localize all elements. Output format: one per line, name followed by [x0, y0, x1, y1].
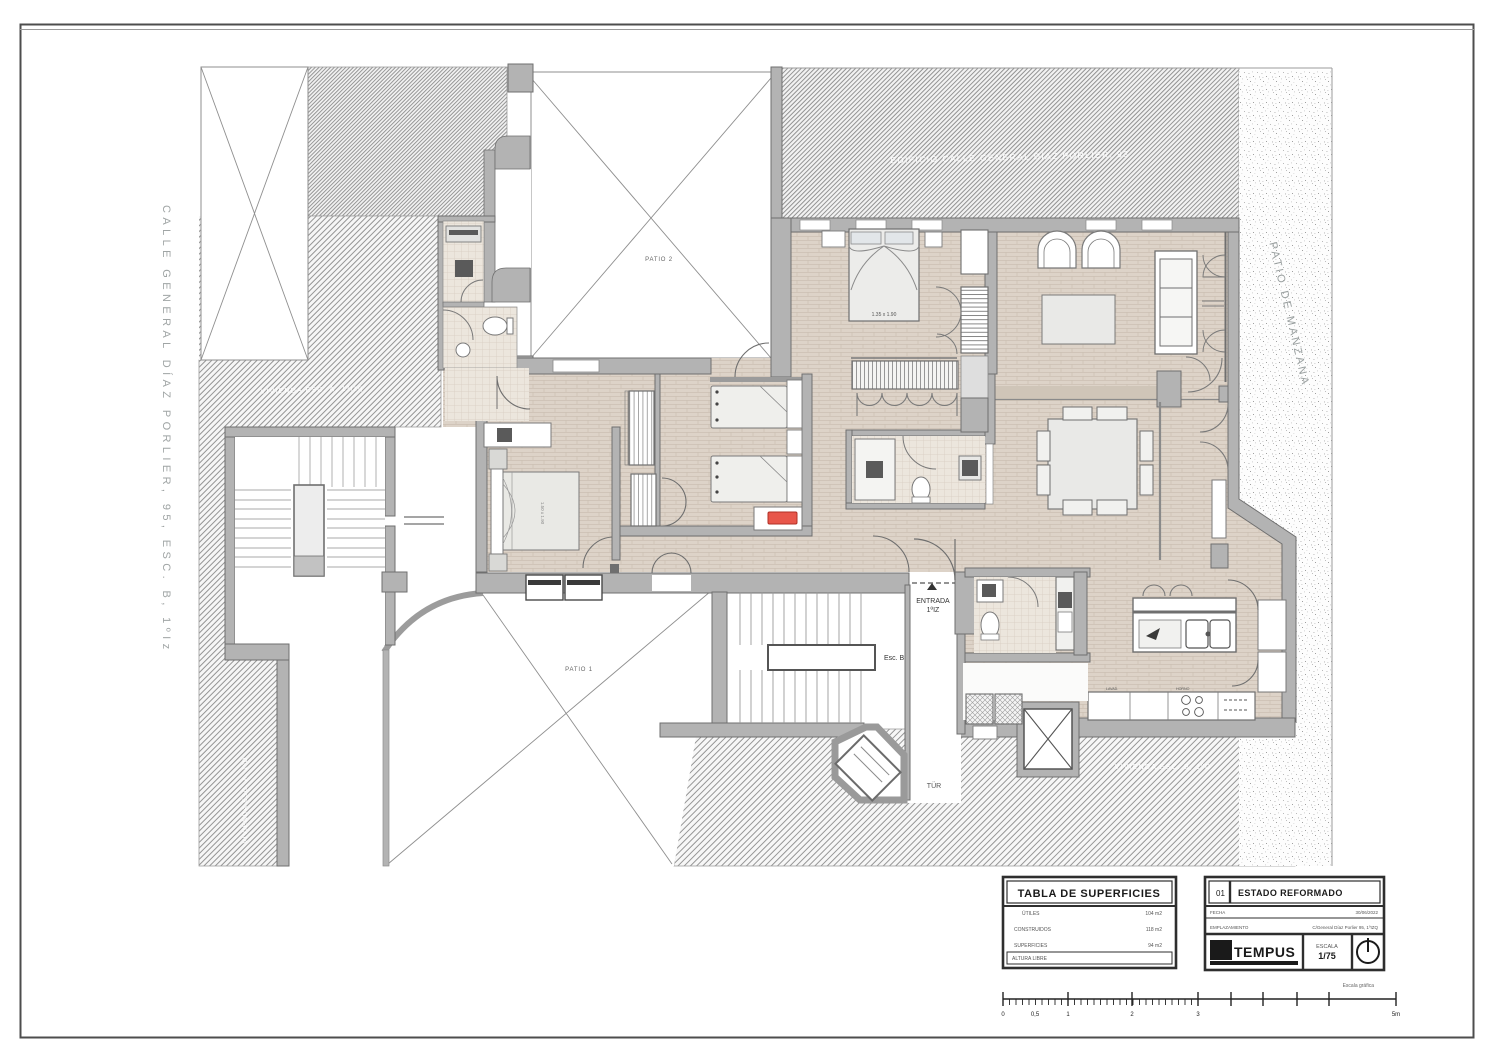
svg-text:1/75: 1/75: [1318, 951, 1336, 961]
svg-text:FECHA: FECHA: [1210, 910, 1225, 915]
svg-text:30/06/2022: 30/06/2022: [1355, 910, 1378, 915]
svg-text:VIVIENDA ESC. A, 1ºD: VIVIENDA ESC. A, 1ºD: [242, 756, 249, 843]
svg-text:Escala gráfica: Escala gráfica: [1343, 983, 1375, 989]
svg-text:ALTURA LIBRE: ALTURA LIBRE: [1012, 956, 1048, 962]
svg-text:104 m2: 104 m2: [1145, 911, 1162, 917]
svg-text:LAVAD.: LAVAD.: [1106, 687, 1118, 691]
svg-text:VIVIENDA ESC. B, 1ºD: VIVIENDA ESC. B, 1ºD: [1115, 764, 1212, 771]
svg-text:1.50 x 1.90: 1.50 x 1.90: [540, 502, 545, 525]
svg-text:Esc. B: Esc. B: [884, 655, 905, 662]
svg-text:TÜR: TÜR: [927, 782, 941, 790]
svg-text:TEMPUS: TEMPUS: [1234, 944, 1295, 960]
svg-text:PATIO 2: PATIO 2: [645, 257, 673, 263]
svg-text:118 m2: 118 m2: [1146, 927, 1163, 933]
svg-text:1ºIZ: 1ºIZ: [927, 607, 940, 614]
svg-text:ESTADO REFORMADO: ESTADO REFORMADO: [1238, 888, 1343, 898]
svg-text:ENTRADA: ENTRADA: [916, 598, 950, 605]
svg-text:PATIO 1: PATIO 1: [565, 667, 593, 673]
svg-text:5m: 5m: [1392, 1012, 1400, 1018]
svg-text:SUPERFICIES: SUPERFICIES: [1014, 943, 1048, 949]
svg-text:ESCALA: ESCALA: [1316, 944, 1338, 950]
svg-text:ÚTILES: ÚTILES: [1022, 910, 1040, 917]
svg-text:C/General Díaz Porlier 95, 1ºI: C/General Díaz Porlier 95, 1ºIZQ: [1312, 925, 1378, 930]
svg-text:94 m2: 94 m2: [1148, 943, 1162, 949]
svg-text:1.35 x 1.90: 1.35 x 1.90: [872, 312, 897, 318]
svg-text:CONSTRUIDOS: CONSTRUIDOS: [1014, 927, 1052, 933]
svg-text:HORNO: HORNO: [1176, 687, 1190, 691]
svg-text:CALLE GENERAL DÍAZ PORLIER, 95: CALLE GENERAL DÍAZ PORLIER, 95, ESC. B, …: [160, 205, 173, 653]
svg-text:TABLA DE SUPERFICIES: TABLA DE SUPERFICIES: [1018, 888, 1161, 900]
svg-text:EMPLAZAMIENTO: EMPLAZAMIENTO: [1210, 925, 1249, 930]
svg-text:01: 01: [1216, 889, 1225, 898]
svg-text:0,5: 0,5: [1031, 1012, 1040, 1018]
